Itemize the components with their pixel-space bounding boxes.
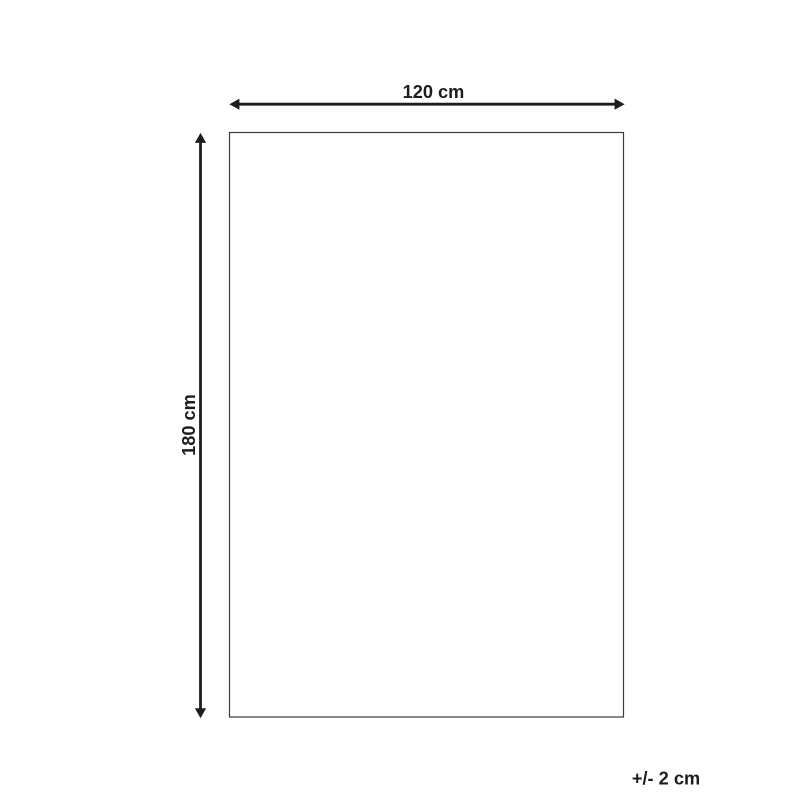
svg-text:+/- 2 cm: +/- 2 cm xyxy=(632,769,700,789)
svg-text:180 cm: 180 cm xyxy=(179,394,199,456)
svg-text:120 cm: 120 cm xyxy=(403,82,465,102)
